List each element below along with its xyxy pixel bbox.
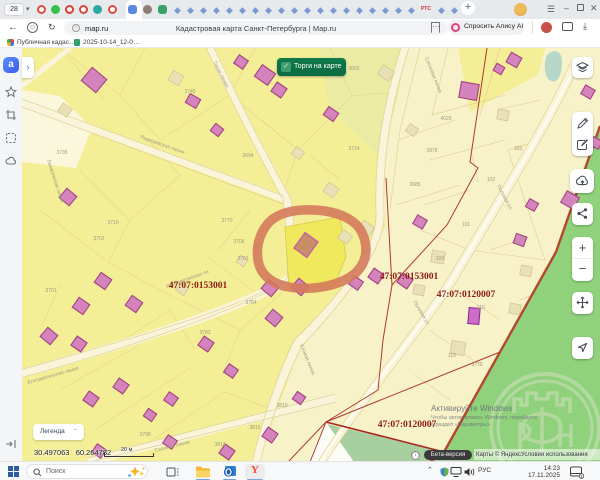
svg-text:3810: 3810	[276, 403, 287, 409]
svg-text:47:07:0120007: 47:07:0120007	[378, 420, 437, 430]
svg-text:4029: 4029	[440, 116, 451, 122]
svg-text:3735: 3735	[56, 150, 67, 156]
svg-text:103: 103	[514, 146, 523, 152]
svg-text:2876: 2876	[426, 148, 437, 154]
svg-text:3779: 3779	[471, 362, 482, 368]
svg-text:47:07:0153001: 47:07:0153001	[380, 272, 439, 282]
svg-text:3702: 3702	[93, 236, 104, 242]
svg-text:102: 102	[487, 177, 496, 183]
svg-text:115: 115	[448, 353, 456, 359]
svg-text:100: 100	[436, 256, 445, 262]
svg-text:47:07:0153001: 47:07:0153001	[169, 281, 228, 291]
svg-text:3783: 3783	[199, 330, 210, 336]
svg-text:2002: 2002	[348, 66, 359, 72]
svg-text:3701: 3701	[45, 288, 56, 294]
svg-text:3784: 3784	[245, 300, 256, 306]
svg-text:3706: 3706	[233, 239, 244, 245]
svg-text:3781: 3781	[237, 256, 248, 262]
svg-text:3814: 3814	[214, 442, 225, 448]
svg-text:101: 101	[462, 222, 471, 228]
svg-text:47:07:0120007: 47:07:0120007	[437, 290, 496, 300]
svg-text:3685: 3685	[409, 182, 420, 188]
svg-text:3816: 3816	[249, 425, 260, 431]
svg-text:3714: 3714	[348, 146, 359, 152]
svg-text:3798: 3798	[139, 432, 150, 438]
svg-text:3745: 3745	[184, 89, 195, 95]
svg-text:116: 116	[477, 305, 485, 311]
svg-text:2694: 2694	[242, 153, 253, 159]
svg-text:3770: 3770	[221, 218, 232, 224]
svg-text:3710: 3710	[107, 220, 118, 226]
